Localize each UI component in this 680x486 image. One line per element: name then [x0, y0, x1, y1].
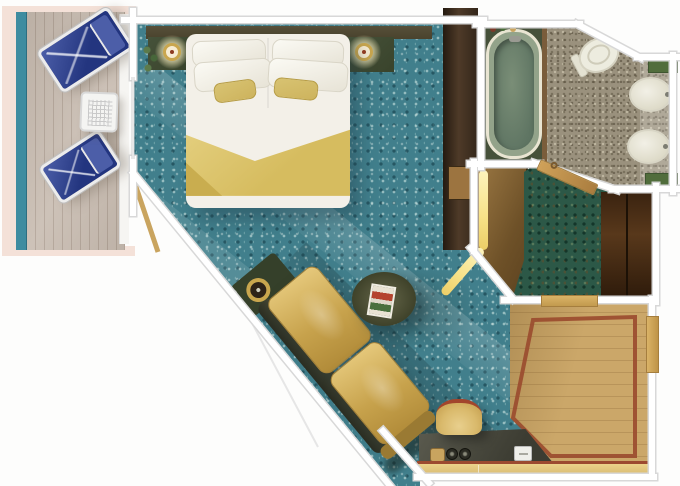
sink-faucet [663, 144, 668, 149]
vanity-stool [436, 399, 482, 435]
sink-faucet [665, 92, 670, 97]
bathtub-basin [494, 38, 534, 150]
stateroom-floor-plan [0, 0, 680, 486]
tub-partition-wall [542, 26, 547, 164]
balcony [0, 0, 140, 260]
magazine [367, 283, 397, 319]
desk-tray [430, 448, 445, 462]
king-bed [186, 34, 350, 208]
bottle [446, 448, 458, 460]
bathtub-faucet [509, 36, 521, 42]
tissue-box [514, 446, 532, 461]
counter-green-bottom [645, 173, 678, 189]
reading-lamp-right [347, 35, 381, 69]
wardrobe [601, 192, 653, 298]
desk-divider-line [478, 465, 479, 480]
wardrobe-door-seam [626, 194, 628, 296]
bathtub [486, 29, 542, 159]
balcony-outer-trim [2, 6, 16, 256]
toiletry-item [500, 25, 506, 31]
entry-door [646, 316, 659, 373]
toiletry-item [510, 26, 516, 32]
closet-light-strip [479, 170, 488, 250]
vanity-desk-front [417, 461, 655, 480]
counter-green-top [648, 59, 678, 73]
gold-accent-pillow [213, 78, 257, 104]
balcony-railing [16, 12, 27, 250]
toiletry-item [490, 26, 496, 32]
wall-cabinet [443, 8, 478, 250]
gold-accent-pillow [273, 77, 319, 101]
minibar-inset [448, 166, 472, 200]
bottle [459, 448, 471, 460]
hall-doorway-threshold [541, 295, 598, 307]
patio-table-mesh [88, 100, 113, 127]
plant [141, 42, 161, 78]
patio-side-table [79, 91, 118, 132]
